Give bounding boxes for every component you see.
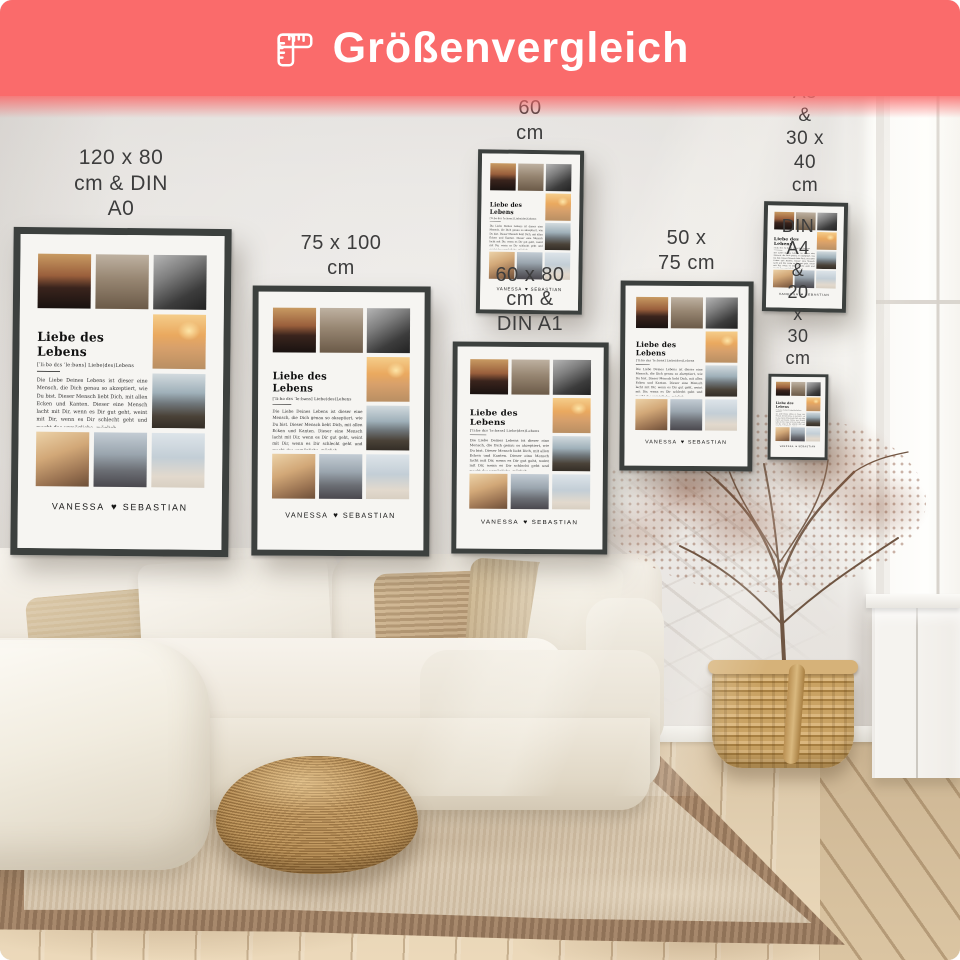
photo-couple-embrace-dusk: [93, 432, 147, 487]
poster-phonetic: [ˈliːbə dɛs ˈleːbəns] Liebe(des)Lebens: [272, 397, 362, 402]
collage-side-column: [552, 398, 590, 471]
size-label: 50 x 75 cm: [653, 226, 720, 275]
poster-title: Liebe des Lebens: [776, 401, 805, 409]
divider-rule: [272, 404, 291, 405]
poster-frame: Liebe des Lebens [ˈliːbə dɛs ˈleːbəns] L…: [768, 374, 829, 461]
photo-couple-beach-daylight: [36, 432, 90, 487]
collage-side-column: [806, 397, 820, 426]
photo-couple-closeup-bw: [546, 164, 572, 191]
collage-bottom-row: [272, 454, 409, 499]
photo-couple-lake-view: [816, 251, 836, 269]
banner-fade: [0, 96, 960, 118]
poster-title: Liebe des Lebens: [636, 340, 703, 357]
name-right: SEBASTIAN: [532, 518, 579, 525]
photo-couple-face-to-face: [806, 427, 820, 441]
photo-couple-closeup-bw: [553, 360, 591, 395]
photo-couple-embrace-dusk: [511, 474, 549, 509]
couple-names: VANESSA ♥ SEBASTIAN: [635, 438, 737, 445]
definition-block: Liebe des Lebens [ˈliːbə dɛs ˈleːbəns] L…: [470, 397, 550, 471]
photo-couple-walking-mountains: [95, 254, 149, 309]
photo-couple-beach-daylight: [272, 454, 315, 499]
photo-couple-beach-daylight: [469, 474, 507, 509]
collage-middle-row: Liebe des Lebens [ˈliːbə dɛs ˈleːbəns] L…: [36, 313, 206, 429]
name-left: VANESSA: [285, 510, 328, 519]
collage-middle-row: Liebe des Lebens [ˈliːbə dɛs ˈleːbəns] L…: [636, 331, 738, 397]
photo-couple-lake-view: [552, 436, 590, 471]
poster-content: Liebe des Lebens [ˈliːbə dɛs ˈleːbəns] L…: [456, 346, 604, 549]
collage-bottom-row: [775, 427, 820, 441]
photo-couple-walking-mountains: [671, 297, 703, 328]
collage-top-row: [490, 163, 571, 191]
poster-title: Liebe des Lebens: [37, 330, 148, 360]
photo-couple-sunset-silhouette: [776, 382, 790, 396]
poster-group-50x75: 50 x 75 cm Liebe des Lebens [ˈliːbə dɛs …: [620, 281, 753, 471]
photo-couple-lake-view: [705, 365, 737, 396]
collage-top-row: [776, 382, 821, 396]
definition-block: Liebe des Lebens [ˈliːbə dɛs ˈleːbəns] L…: [489, 193, 543, 250]
photo-couple-walking-mountains: [791, 382, 805, 396]
definition-block: Liebe des Lebens [ˈliːbə dɛs ˈleːbəns] L…: [636, 331, 703, 397]
photo-couple-beach-sunset: [705, 331, 737, 362]
photo-couple-closeup-bw: [153, 255, 207, 310]
poster-content: Liebe des Lebens [ˈliːbə dɛs ˈleːbəns] L…: [771, 377, 826, 458]
definition-block: Liebe des Lebens [ˈliːbə dɛs ˈleːbəns] L…: [776, 397, 806, 426]
poster-definition-text: Die Liebe Deines Lebens ist dieser eine …: [272, 408, 362, 451]
photo-couple-beach-sunset: [553, 398, 591, 433]
poster-content: Liebe des Lebens [ˈliːbə dɛs ˈleːbəns] L…: [17, 234, 224, 550]
poster-phonetic: [ˈliːbə dɛs ˈleːbəns] Liebe(des)Lebens: [37, 362, 148, 369]
collage-side-column: [816, 232, 837, 269]
heart-icon: ♥: [681, 438, 684, 444]
divider-rule: [37, 371, 60, 372]
photo-couple-sunset-silhouette: [273, 308, 316, 353]
photo-couple-lake-view: [806, 412, 820, 426]
name-right: SEBASTIAN: [798, 445, 815, 448]
poster-group-75x100: 75 x 100 cm Liebe des Lebens [ˈliːbə dɛs…: [252, 286, 430, 556]
couple-names: VANESSA ♥ SEBASTIAN: [272, 510, 409, 520]
collage-middle-row: Liebe des Lebens [ˈliːbə dɛs ˈleːbəns] L…: [272, 356, 410, 450]
size-comparison-product-image: 120 x 80 cm & DIN A0 Liebe des Lebens [ˈ…: [0, 0, 960, 960]
name-left: VANESSA: [52, 501, 105, 512]
photo-couple-lake-view: [152, 374, 206, 429]
poster-definition-text: Die Liebe Deines Lebens ist dieser eine …: [776, 413, 805, 426]
wicker-basket-rim: [708, 660, 858, 674]
poster-phonetic: [ˈliːbə dɛs ˈleːbəns] Liebe(des)Lebens: [490, 217, 543, 221]
poster-frame: Liebe des Lebens [ˈliːbə dɛs ˈleːbəns] L…: [451, 341, 608, 554]
name-right: SEBASTIAN: [123, 501, 188, 512]
poster-frame: Liebe des Lebens [ˈliːbə dɛs ˈleːbəns] L…: [619, 281, 753, 472]
size-label: 60 x 80 cm & DIN A1: [491, 263, 569, 336]
size-label: DIN A4 & 20 x 30 cm: [782, 216, 815, 370]
photo-couple-walking-mountains: [320, 308, 363, 353]
photo-couple-closeup-bw: [706, 297, 738, 328]
photo-couple-sunset-silhouette: [470, 359, 508, 394]
divider-rule: [490, 221, 501, 222]
collage-top-row: [273, 308, 410, 353]
rattan-pouf: [216, 756, 418, 874]
collage-bottom-row: [469, 474, 590, 510]
poster-definition-text: Die Liebe Deines Lebens ist dieser eine …: [470, 438, 550, 472]
collage-side-column: [152, 314, 206, 428]
poster-collage: Liebe des Lebens [ˈliːbə dɛs ˈleːbəns] L…: [257, 292, 424, 551]
poster-frame: Liebe des Lebens [ˈliːbə dɛs ˈleːbəns] L…: [10, 227, 231, 557]
couple-names: VANESSA ♥ SEBASTIAN: [775, 445, 820, 448]
photo-couple-face-to-face: [552, 474, 590, 509]
collage-top-row: [470, 359, 591, 395]
couple-names: VANESSA ♥ SEBASTIAN: [35, 500, 204, 513]
collage-top-row: [38, 254, 207, 310]
definition-block: Liebe des Lebens [ˈliːbə dɛs ˈleːbəns] L…: [272, 356, 363, 450]
photo-couple-beach-sunset: [817, 232, 837, 250]
photo-couple-beach-sunset: [366, 357, 409, 402]
name-left: VANESSA: [481, 518, 519, 525]
header-banner: Größenvergleich: [0, 0, 960, 96]
name-right: SEBASTIAN: [688, 439, 727, 445]
page-title: Größenvergleich: [333, 24, 690, 73]
poster-phonetic: [ˈliːbə dɛs ˈleːbəns] Liebe(des)Lebens: [636, 359, 703, 363]
photo-couple-lake-view: [366, 406, 409, 451]
photo-couple-face-to-face: [705, 399, 737, 430]
couple-names: VANESSA ♥ SEBASTIAN: [469, 518, 590, 526]
collage-bottom-row: [635, 399, 737, 431]
photo-couple-beach-sunset: [806, 397, 820, 411]
photo-couple-face-to-face: [816, 270, 836, 288]
photo-couple-beach-sunset: [153, 314, 207, 369]
collage-middle-row: Liebe des Lebens [ˈliːbə dɛs ˈleːbəns] L…: [489, 193, 571, 251]
poster-group-60x80: 60 x 80 cm & DIN A1 Liebe des Lebens [ˈl…: [452, 342, 608, 554]
collage-bottom-row: [36, 432, 205, 488]
divider-rule: [470, 435, 487, 436]
definition-block: Liebe des Lebens [ˈliːbə dɛs ˈleːbəns] L…: [36, 313, 148, 428]
folding-ruler-icon: [271, 25, 317, 71]
living-room-scene: 120 x 80 cm & DIN A0 Liebe des Lebens [ˈ…: [0, 0, 960, 960]
photo-couple-walking-mountains: [511, 359, 549, 394]
poster-phonetic: [ˈliːbə dɛs ˈleːbəns] Liebe(des)Lebens: [776, 409, 805, 411]
poster-group-din-a4: DIN A4 & 20 x 30 cm Liebe des Lebens [ˈl…: [768, 374, 828, 460]
photo-couple-sunset-silhouette: [636, 297, 668, 328]
photo-couple-beach-daylight: [775, 427, 789, 441]
poster-collage: Liebe des Lebens [ˈliːbə dɛs ˈleːbəns] L…: [771, 377, 826, 458]
size-label: 75 x 100 cm: [297, 231, 386, 280]
photo-couple-lake-view: [545, 223, 571, 250]
name-right: SEBASTIAN: [343, 511, 396, 520]
collage-top-row: [636, 297, 738, 329]
collage-side-column: [366, 357, 410, 451]
photo-couple-face-to-face: [366, 454, 409, 499]
photo-couple-beach-sunset: [545, 193, 571, 220]
photo-couple-face-to-face: [151, 433, 205, 488]
poster-content: Liebe des Lebens [ˈliːbə dɛs ˈleːbəns] L…: [257, 292, 424, 551]
size-label: 120 x 80 cm & DIN A0: [67, 145, 176, 222]
photo-couple-beach-daylight: [635, 399, 667, 430]
poster-collage: Liebe des Lebens [ˈliːbə dɛs ˈleːbəns] L…: [624, 286, 748, 467]
photo-couple-closeup-bw: [807, 382, 821, 396]
poster-definition-text: Die Liebe Deines Lebens ist dieser eine …: [636, 367, 703, 397]
photo-couple-sunset-silhouette: [490, 163, 516, 190]
poster-collage: Liebe des Lebens [ˈliːbə dɛs ˈleːbəns] L…: [17, 234, 224, 550]
poster-definition-text: Die Liebe Deines Lebens ist dieser eine …: [36, 376, 147, 429]
photo-couple-embrace-dusk: [791, 427, 805, 441]
photo-couple-closeup-bw: [817, 213, 837, 231]
heart-icon: ♥: [795, 445, 797, 448]
heart-icon: ♥: [333, 510, 338, 519]
collage-side-column: [545, 193, 571, 250]
heart-icon: ♥: [523, 518, 527, 525]
poster-title: Liebe des Lebens: [490, 201, 543, 216]
name-left: VANESSA: [780, 445, 794, 448]
poster-content: Liebe des Lebens [ˈliːbə dɛs ˈleːbəns] L…: [624, 286, 748, 467]
collage-middle-row: Liebe des Lebens [ˈliːbə dɛs ˈleːbəns] L…: [470, 397, 591, 471]
photo-couple-walking-mountains: [518, 164, 544, 191]
poster-definition-text: Die Liebe Deines Lebens ist dieser eine …: [489, 224, 543, 250]
photo-couple-sunset-silhouette: [38, 254, 92, 309]
photo-couple-closeup-bw: [367, 308, 410, 353]
collage-middle-row: Liebe des Lebens [ˈliːbə dɛs ˈleːbəns] L…: [776, 397, 821, 426]
photo-couple-embrace-dusk: [670, 399, 702, 430]
poster-title: Liebe des Lebens: [470, 408, 550, 427]
poster-frame: Liebe des Lebens [ˈliːbə dɛs ˈleːbəns] L…: [251, 286, 430, 557]
photo-couple-embrace-dusk: [319, 454, 362, 499]
name-left: VANESSA: [645, 438, 677, 444]
poster-group-120x80: 120 x 80 cm & DIN A0 Liebe des Lebens [ˈ…: [12, 228, 230, 556]
throw-blanket: [0, 640, 210, 870]
heart-icon: ♥: [111, 501, 117, 512]
poster-collage: Liebe des Lebens [ˈliːbə dɛs ˈleːbəns] L…: [456, 346, 604, 549]
poster-phonetic: [ˈliːbə dɛs ˈleːbəns] Liebe(des)Lebens: [470, 429, 549, 433]
poster-title: Liebe des Lebens: [273, 370, 363, 395]
collage-side-column: [705, 331, 737, 396]
